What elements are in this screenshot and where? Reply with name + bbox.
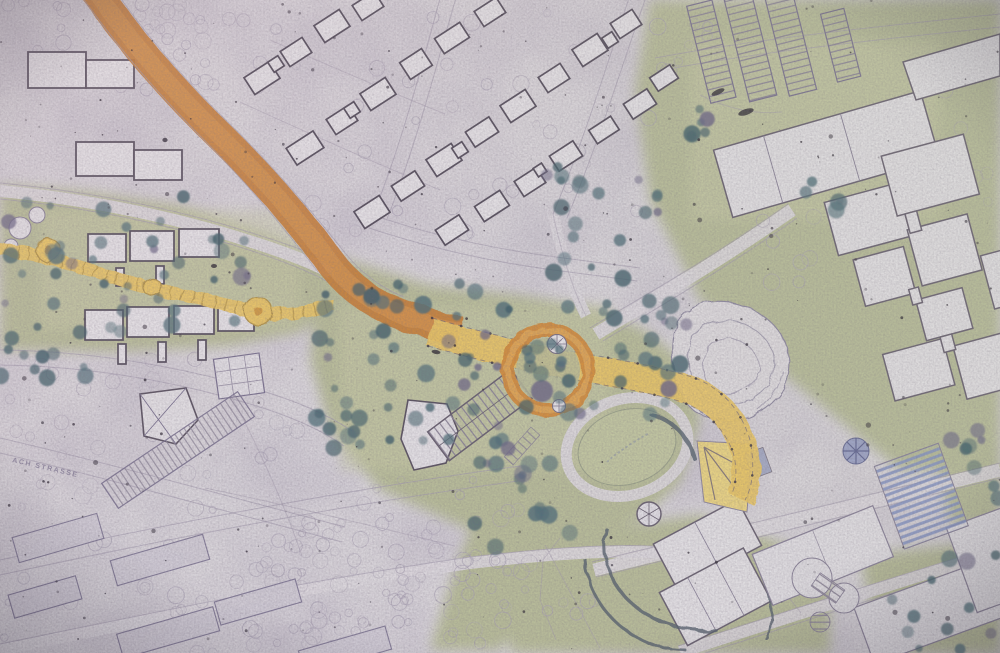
- site-plan-map: ACH STRASSE: [0, 0, 1000, 653]
- site-plan-photo: ACH STRASSE: [0, 0, 1000, 653]
- vignette: [0, 0, 1000, 653]
